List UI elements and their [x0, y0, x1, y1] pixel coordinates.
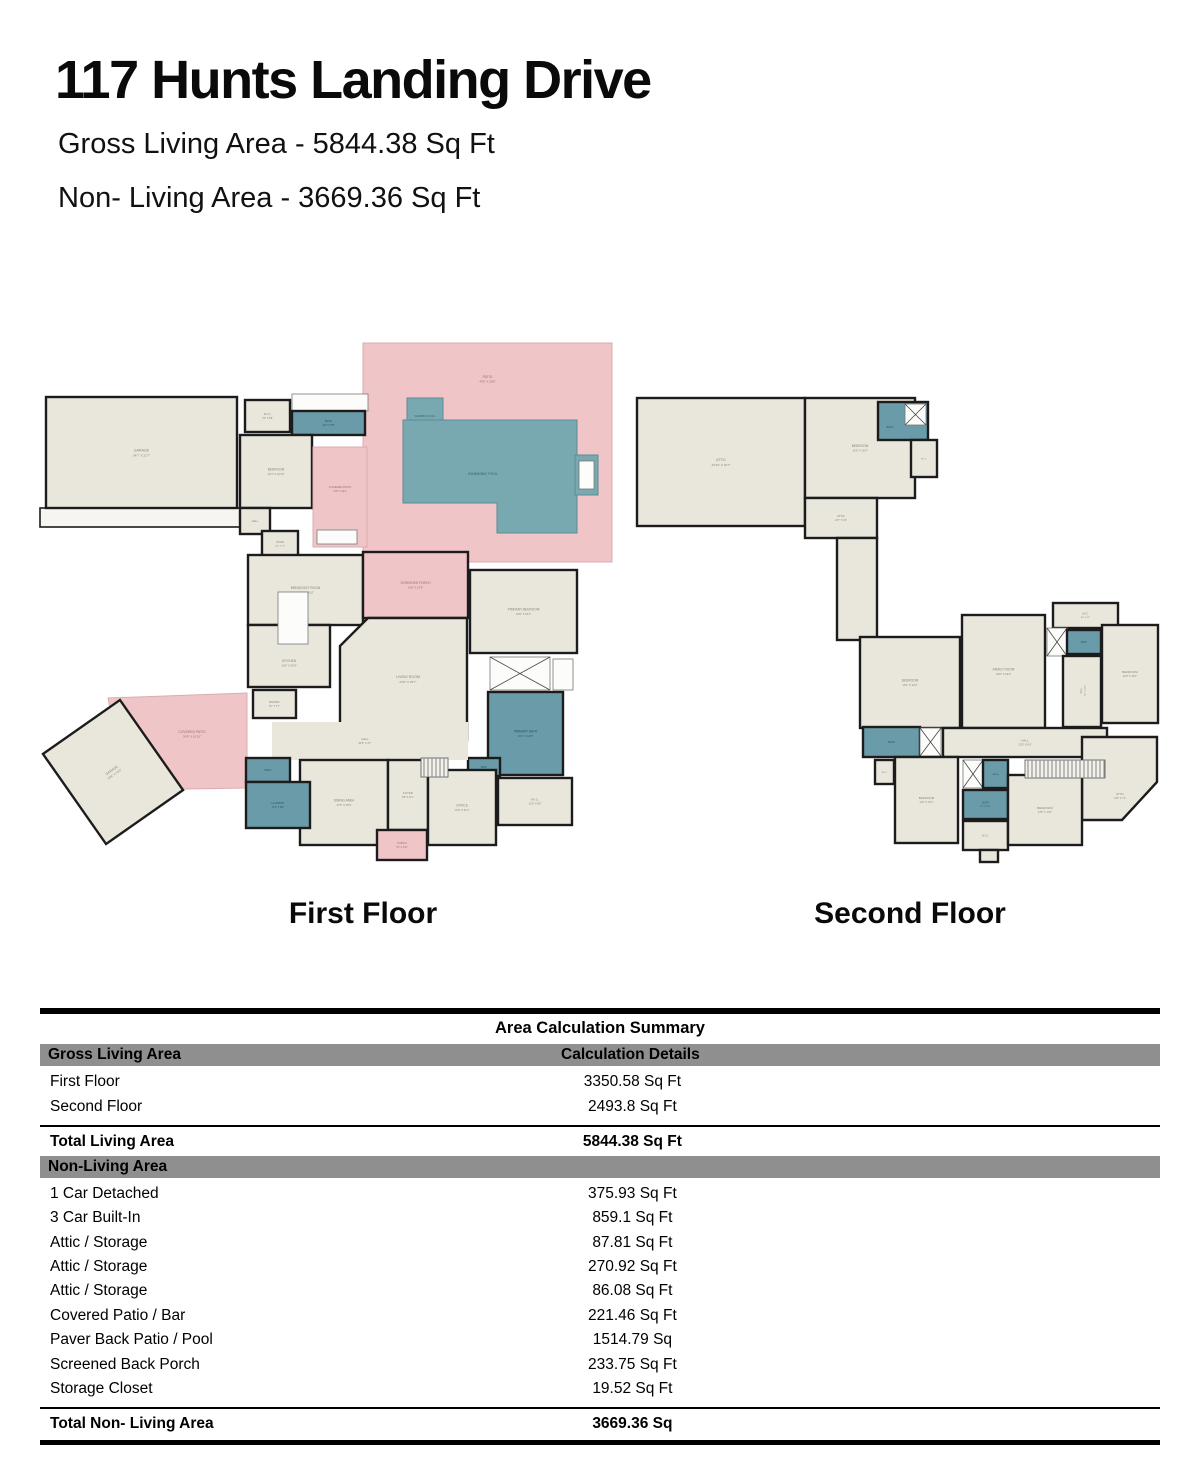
- room-attic: ATTIC14'5" X 7'3": [1082, 737, 1157, 820]
- svg-text:12'5" X 8'5": 12'5" X 8'5": [529, 802, 542, 806]
- room-office: OFFICE12'8" X 11'1": [428, 770, 496, 845]
- svg-text:16'8" X 13'9": 16'8" X 13'9": [408, 585, 423, 589]
- svg-text:W.I.C.: W.I.C.: [882, 772, 888, 774]
- svg-text:43'6" X 38'0": 43'6" X 38'0": [479, 380, 495, 384]
- header: 117 Hunts Landing Drive: [55, 52, 651, 109]
- total-value: 5844.38 Sq Ft: [543, 1133, 722, 1151]
- row-value: 2493.8 Sq Ft: [543, 1098, 722, 1116]
- plan-shape: [553, 659, 573, 690]
- svg-text:14'5" X 7'3": 14'5" X 7'3": [1114, 797, 1126, 800]
- room-porch: PORCH8'1" X 2'10": [377, 830, 427, 860]
- second-floor-plan: ATTIC34'10" X 22'7"BEDROOM16'6" X 16'4"B…: [637, 398, 1158, 862]
- row-value: 233.75 Sq Ft: [543, 1356, 722, 1374]
- section-header-details: [541, 1158, 720, 1176]
- svg-text:DINING AREA: DINING AREA: [334, 799, 355, 803]
- plan-shape: [980, 850, 998, 862]
- svg-text:PANTRY: PANTRY: [269, 700, 280, 704]
- svg-text:FOYER: FOYER: [403, 791, 413, 795]
- svg-text:17'8" X 15'5": 17'8" X 15'5": [336, 803, 351, 807]
- svg-text:32'5" X 4'7": 32'5" X 4'7": [359, 741, 372, 745]
- svg-text:HALL: HALL: [1021, 739, 1029, 743]
- room-screened-porch: SCREENED PORCH16'8" X 13'9": [363, 552, 468, 618]
- svg-text:HALL: HALL: [252, 519, 259, 523]
- room-laundry: LAUNDRY11'6" X 8'8": [246, 782, 310, 828]
- plan-shape: [905, 404, 926, 425]
- room-bedroom: BEDROOM12'4" X 12'10": [240, 435, 312, 508]
- svg-text:10'4" X 5'8": 10'4" X 5'8": [322, 424, 334, 427]
- first-floor-label: First Floor: [238, 897, 488, 931]
- svg-text:PORCH: PORCH: [397, 841, 406, 845]
- svg-text:4'4" X 5'8": 4'4" X 5'8": [262, 417, 273, 420]
- svg-text:16'1" X 12'2": 16'1" X 12'2": [902, 683, 917, 687]
- room-bath: BATH: [1067, 630, 1101, 654]
- first-floor-plan: PATIO43'6" X 38'0"COVERED PATIO24'8" X 1…: [40, 343, 612, 860]
- svg-text:BEDROOM: BEDROOM: [852, 444, 869, 448]
- svg-text:3'10" X 12'4": 3'10" X 12'4": [1085, 684, 1087, 696]
- svg-text:PRIMARY BEDROOM: PRIMARY BEDROOM: [508, 608, 540, 612]
- row-label: First Floor: [40, 1073, 543, 1091]
- area-calculation-table: Area Calculation Summary Gross Living Ar…: [40, 1008, 1160, 1445]
- svg-text:16'6" X 16'4": 16'6" X 16'4": [852, 448, 867, 452]
- row-label: Paver Back Patio / Pool: [40, 1331, 543, 1349]
- room-bedroom: BEDROOM12'9" X 16'1": [1102, 625, 1158, 723]
- svg-text:13'7" X 4'3": 13'7" X 4'3": [835, 519, 847, 522]
- plan-shape: [490, 657, 550, 690]
- svg-text:W.I.C.: W.I.C.: [1082, 613, 1089, 616]
- svg-text:BREAKFAST ROOM: BREAKFAST ROOM: [291, 586, 321, 590]
- row-value: 1514.79 Sq: [543, 1331, 722, 1349]
- svg-text:34'7" X 22'7": 34'7" X 22'7": [133, 453, 150, 457]
- svg-text:ATTIC: ATTIC: [716, 458, 727, 462]
- svg-text:LIVING ROOM: LIVING ROOM: [396, 675, 420, 679]
- row-value: 270.92 Sq Ft: [543, 1258, 722, 1276]
- svg-text:9'8" X 4'5": 9'8" X 4'5": [1081, 617, 1090, 619]
- svg-text:BEDROOM: BEDROOM: [268, 468, 285, 472]
- room-bath: BATH8'2" X 5'10": [963, 790, 1008, 819]
- svg-text:8'1" X 2'10": 8'1" X 2'10": [396, 847, 407, 849]
- room-bath: BATH10'4" X 5'8": [292, 411, 365, 435]
- row-value: 87.81 Sq Ft: [543, 1234, 722, 1252]
- svg-text:BEDROOM: BEDROOM: [1037, 806, 1053, 810]
- room-attic: ATTIC34'10" X 22'7": [637, 398, 805, 526]
- svg-text:BATH: BATH: [993, 773, 999, 776]
- section-header-label: Non-Living Area: [40, 1158, 541, 1176]
- room-living-room: LIVING ROOM23'6" X 25'7": [340, 618, 467, 740]
- svg-text:16'4" X 20'8": 16'4" X 20'8": [281, 663, 296, 667]
- svg-text:COVERED PATIO: COVERED PATIO: [329, 485, 352, 489]
- svg-text:23'6" X 25'7": 23'6" X 25'7": [399, 680, 416, 684]
- table-row: Covered Patio / Bar221.46 Sq Ft: [40, 1304, 1160, 1328]
- svg-text:12'4" X 12'10": 12'4" X 12'10": [268, 472, 285, 476]
- table-section-header: Non-Living Area: [40, 1156, 1160, 1178]
- svg-text:BATH: BATH: [325, 419, 332, 423]
- svg-text:W.I.C.: W.I.C.: [982, 834, 989, 838]
- room-hall: HALL3'10" X 12'4": [1063, 656, 1101, 727]
- row-label: 3 Car Built-In: [40, 1209, 543, 1227]
- table-row: Storage Closet19.52 Sq Ft: [40, 1377, 1160, 1401]
- table-row: Screened Back Porch233.75 Sq Ft: [40, 1352, 1160, 1376]
- plan-shape: [272, 722, 468, 760]
- svg-text:11'6" X 13'1": 11'6" X 13'1": [919, 800, 933, 804]
- svg-text:14'8" X 19'0": 14'8" X 19'0": [996, 672, 1011, 676]
- svg-text:12'9" X 16'1": 12'9" X 16'1": [1123, 674, 1137, 678]
- page-title: 117 Hunts Landing Drive: [55, 52, 651, 109]
- room-w-i-c-: W.I.C.: [911, 440, 937, 477]
- svg-text:ATTIC: ATTIC: [1116, 792, 1124, 796]
- row-label: Covered Patio / Bar: [40, 1307, 543, 1325]
- svg-text:BATH: BATH: [481, 766, 487, 769]
- svg-text:16'1" X 13'8": 16'1" X 13'8": [518, 734, 533, 738]
- svg-text:9'8" X 11'1": 9'8" X 11'1": [402, 796, 414, 799]
- svg-text:BATH: BATH: [982, 802, 988, 805]
- table-row: Paver Back Patio / Pool1514.79 Sq: [40, 1328, 1160, 1352]
- svg-text:SWIMMING POOL: SWIMMING POOL: [468, 472, 498, 476]
- room-bath: BATH: [863, 727, 920, 757]
- row-value: 3350.58 Sq Ft: [543, 1073, 722, 1091]
- svg-text:BATH: BATH: [265, 768, 272, 772]
- room-bedroom: BEDROOM16'1" X 12'2": [860, 637, 960, 728]
- svg-text:BATH: BATH: [887, 425, 894, 429]
- floor-plans-drawing: PATIO43'6" X 38'0"COVERED PATIO24'8" X 1…: [0, 320, 1200, 880]
- row-value: 221.46 Sq Ft: [543, 1307, 722, 1325]
- row-value: 859.1 Sq Ft: [543, 1209, 722, 1227]
- room-w-i-c-: W.I.C.12'5" X 8'5": [498, 778, 572, 825]
- svg-text:BEDROOM: BEDROOM: [919, 796, 935, 800]
- row-label: Attic / Storage: [40, 1234, 543, 1252]
- room-bath: BATH: [246, 758, 290, 782]
- table-total-row: Total Living Area5844.38 Sq Ft: [40, 1125, 1160, 1156]
- plan-shape: [421, 758, 448, 777]
- plan-shape: [317, 530, 357, 544]
- plan-shape: [579, 461, 594, 489]
- table-row: 3 Car Built-In859.1 Sq Ft: [40, 1206, 1160, 1230]
- svg-text:LAUNDRY: LAUNDRY: [271, 801, 284, 805]
- svg-text:13'8" X 16'4": 13'8" X 16'4": [333, 490, 347, 493]
- table-row: Attic / Storage270.92 Sq Ft: [40, 1255, 1160, 1279]
- gross-living-area-subtitle: Gross Living Area - 5844.38 Sq Ft: [58, 128, 495, 161]
- svg-text:W.I.C.: W.I.C.: [264, 412, 272, 416]
- row-label: Screened Back Porch: [40, 1356, 543, 1374]
- row-label: Attic / Storage: [40, 1282, 543, 1300]
- svg-text:PATIO: PATIO: [483, 375, 493, 379]
- room-bath: BATH: [983, 760, 1008, 788]
- svg-text:SCREENED PORCH: SCREENED PORCH: [400, 581, 431, 585]
- total-label: Total Living Area: [40, 1133, 543, 1151]
- table-total-row: Total Non- Living Area3669.36 Sq: [40, 1407, 1160, 1438]
- row-label: 1 Car Detached: [40, 1185, 543, 1203]
- table-row: First Floor3350.58 Sq Ft: [40, 1070, 1160, 1094]
- svg-text:KITCHEN: KITCHEN: [282, 659, 297, 663]
- svg-text:11'6" X 8'8": 11'6" X 8'8": [272, 806, 284, 809]
- svg-text:GARAGE: GARAGE: [134, 449, 150, 453]
- plan-shape: [278, 592, 308, 644]
- row-value: 86.08 Sq Ft: [543, 1282, 722, 1300]
- svg-text:W.I.C.: W.I.C.: [921, 459, 927, 461]
- total-label: Total Non- Living Area: [40, 1415, 543, 1433]
- floor-plan-page: 117 Hunts Landing Drive Gross Living Are…: [0, 0, 1200, 1471]
- room-bedroom: BEDROOM13'6" X 13'1": [1008, 775, 1082, 845]
- svg-text:20'3" X 6'4": 20'3" X 6'4": [1019, 743, 1032, 747]
- svg-text:13'6" X 13'1": 13'6" X 13'1": [1038, 810, 1052, 814]
- row-label: Storage Closet: [40, 1380, 543, 1398]
- room-room: ROOM10'0" X 7'5": [262, 531, 298, 557]
- room-garage: GARAGE34'7" X 22'7": [46, 397, 237, 508]
- svg-text:HALL: HALL: [361, 737, 369, 741]
- room-w-i-c-: W.I.C.: [963, 821, 1008, 850]
- section-header-label: Gross Living Area: [40, 1046, 541, 1064]
- plan-shape: [1025, 760, 1105, 778]
- svg-text:BEDROOM: BEDROOM: [1122, 670, 1138, 674]
- svg-text:COVERED PATIO: COVERED PATIO: [178, 730, 206, 734]
- svg-text:ATTIC: ATTIC: [837, 514, 845, 518]
- room-primary-bedroom: PRIMARY BEDROOM16'8" X 15'2": [470, 570, 577, 653]
- plan-shape: [40, 508, 245, 527]
- table-body: Gross Living AreaCalculation DetailsFirs…: [40, 1044, 1160, 1438]
- plan-shape: [292, 394, 368, 411]
- svg-text:24'8" X 16'10": 24'8" X 16'10": [183, 735, 201, 739]
- svg-text:ROOM: ROOM: [276, 541, 283, 544]
- plan-shape: [920, 728, 941, 756]
- svg-text:16'8" X 15'2": 16'8" X 15'2": [516, 612, 531, 616]
- svg-text:BATH: BATH: [1081, 641, 1087, 644]
- table-bottom-border: [40, 1440, 1160, 1445]
- section-header-details: Calculation Details: [541, 1046, 720, 1064]
- svg-text:PRIMARY BATH: PRIMARY BATH: [514, 730, 538, 734]
- room-w-i-c-: W.I.C.4'4" X 5'8": [245, 400, 290, 432]
- svg-text:8'7" X 7'7": 8'7" X 7'7": [269, 705, 280, 708]
- svg-text:HALL: HALL: [1080, 687, 1083, 694]
- svg-text:BATH: BATH: [888, 740, 895, 744]
- svg-text:W.I.C.: W.I.C.: [531, 798, 539, 802]
- svg-text:WARMING POOL: WARMING POOL: [415, 414, 436, 418]
- room-bedroom: BEDROOM11'6" X 13'1": [895, 757, 958, 843]
- non-living-area-subtitle: Non- Living Area - 3669.36 Sq Ft: [58, 182, 480, 215]
- table-row: Attic / Storage86.08 Sq Ft: [40, 1279, 1160, 1303]
- svg-text:BEDROOM: BEDROOM: [902, 679, 919, 683]
- table-row: Second Floor2493.8 Sq Ft: [40, 1094, 1160, 1118]
- room-family-room: FAMILY ROOM14'8" X 19'0": [962, 615, 1045, 728]
- table-title: Area Calculation Summary: [40, 1014, 1160, 1044]
- table-row: 1 Car Detached375.93 Sq Ft: [40, 1182, 1160, 1206]
- svg-text:10'0" X 7'5": 10'0" X 7'5": [275, 546, 286, 548]
- room-dining-area: DINING AREA17'8" X 15'5": [300, 760, 388, 845]
- room-attic: ATTIC13'7" X 4'3": [805, 498, 877, 538]
- second-floor-label: Second Floor: [780, 897, 1040, 931]
- svg-text:OFFICE: OFFICE: [456, 804, 468, 808]
- svg-text:12'8" X 11'1": 12'8" X 11'1": [454, 808, 469, 812]
- row-label: Attic / Storage: [40, 1258, 543, 1276]
- row-value: 375.93 Sq Ft: [543, 1185, 722, 1203]
- room-w-i-c-: W.I.C.: [875, 760, 894, 784]
- total-value: 3669.36 Sq: [543, 1415, 722, 1433]
- table-section-header: Gross Living AreaCalculation Details: [40, 1044, 1160, 1066]
- svg-text:34'10" X 22'7": 34'10" X 22'7": [712, 463, 731, 467]
- svg-text:8'2" X 5'10": 8'2" X 5'10": [980, 806, 991, 808]
- svg-text:FAMILY ROOM: FAMILY ROOM: [993, 668, 1015, 672]
- table-row: Attic / Storage87.81 Sq Ft: [40, 1231, 1160, 1255]
- plan-shape: [1047, 628, 1067, 656]
- row-value: 19.52 Sq Ft: [543, 1380, 722, 1398]
- row-label: Second Floor: [40, 1098, 543, 1116]
- plan-shape: [837, 538, 877, 640]
- room-pantry: PANTRY8'7" X 7'7": [253, 690, 296, 718]
- plan-shape: [963, 760, 983, 788]
